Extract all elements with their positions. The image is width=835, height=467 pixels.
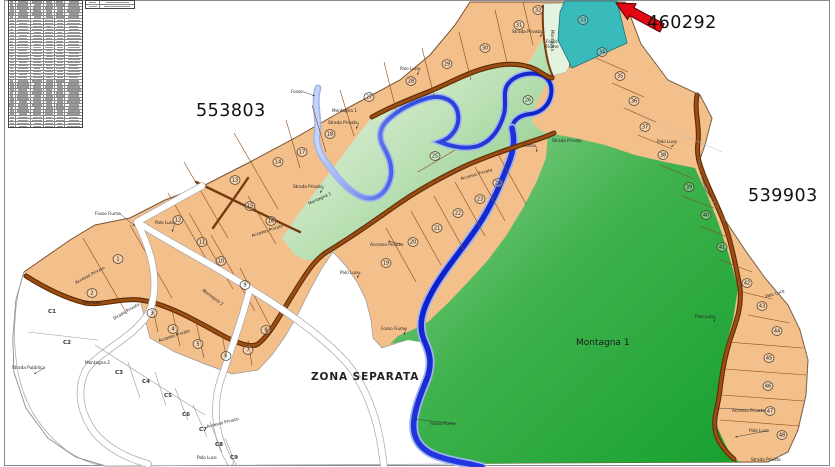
table-cell	[31, 107, 44, 109]
table-cell	[55, 98, 65, 100]
parcel-number: 7	[246, 348, 249, 354]
table-cell	[44, 19, 55, 21]
table-cell	[31, 46, 44, 48]
table-cell	[31, 62, 44, 64]
table-cell	[44, 71, 55, 73]
table-cell	[31, 65, 44, 67]
parcel-number: 38	[660, 153, 666, 159]
table-cell	[44, 4, 55, 6]
table-cell	[31, 4, 44, 6]
parcel-number: 20	[410, 240, 416, 246]
table-cell	[44, 59, 55, 61]
table-cell	[16, 101, 32, 103]
map-annotation: Strada Privata	[293, 184, 323, 189]
table-cell	[55, 89, 65, 91]
map-annotation: Fosso	[524, 143, 536, 148]
table-cell	[31, 86, 44, 88]
table-cell	[44, 83, 55, 85]
table-cell	[31, 19, 44, 21]
table-cell	[55, 113, 65, 115]
table-cell	[55, 119, 65, 121]
table-cell	[55, 13, 65, 15]
table-cell	[65, 98, 82, 100]
parcel-number: 5	[196, 342, 199, 348]
table-cell	[16, 65, 32, 67]
map-annotation: Accesso Privato	[370, 242, 403, 247]
table-cell	[31, 95, 44, 97]
table-cell	[55, 7, 65, 9]
table-cell	[16, 7, 32, 9]
table-cell	[55, 83, 65, 85]
parcel-number: 46	[765, 384, 771, 390]
parcel-number: 21	[434, 226, 440, 232]
table-cell	[16, 43, 32, 45]
table-cell	[31, 71, 44, 73]
table-cell	[31, 101, 44, 103]
table-cell	[55, 101, 65, 103]
map-annotation: Palo Luce	[155, 220, 175, 225]
map-annotation: Palo Luce	[695, 314, 715, 319]
table-cell	[55, 1, 65, 3]
parcel-number: 2	[90, 291, 93, 297]
table-cell	[44, 34, 55, 36]
table-cell	[55, 74, 65, 76]
parcel-number: 30	[482, 46, 488, 52]
table-cell	[31, 10, 44, 12]
table-cell	[44, 28, 55, 30]
table-cell	[55, 71, 65, 73]
table-cell	[44, 1, 55, 3]
c-parcel-label: C7	[199, 427, 207, 433]
table-cell	[55, 37, 65, 39]
table-cell	[86, 5, 100, 8]
table-cell	[55, 53, 65, 55]
table-cell	[31, 28, 44, 30]
table-cell	[65, 19, 82, 21]
parcel-number: 39	[686, 185, 692, 191]
table-cell	[16, 62, 32, 64]
table-cell	[31, 7, 44, 9]
c-parcel-label: C8	[215, 442, 223, 448]
table-cell	[55, 25, 65, 27]
table-cell	[65, 56, 82, 58]
parcel-number: 29	[444, 62, 450, 68]
table-cell	[31, 98, 44, 100]
map-annotation: Strada Pubblica	[12, 365, 45, 370]
table-cell	[55, 122, 65, 124]
table-cell	[65, 92, 82, 94]
c-parcel-label: C6	[182, 412, 190, 418]
table-cell	[16, 71, 32, 73]
table-cell	[44, 86, 55, 88]
map-annotation: Fosso Fiume	[381, 326, 407, 331]
table-cell	[65, 125, 82, 127]
parcel-number: 31	[516, 23, 522, 29]
table-cell	[31, 37, 44, 39]
table-cell	[44, 65, 55, 67]
table-cell	[44, 40, 55, 42]
table-cell	[65, 16, 82, 18]
parcel-number: 37	[642, 125, 648, 131]
parcel-number: 26	[525, 98, 531, 104]
table-cell	[65, 46, 82, 48]
map-annotation: Fosso Fiume	[95, 211, 121, 216]
table-cell	[31, 122, 44, 124]
table-cell	[55, 59, 65, 61]
table-cell	[16, 50, 32, 52]
parcel-number: 3	[150, 311, 153, 317]
table-cell	[65, 83, 82, 85]
parcel-number: 36	[631, 99, 637, 105]
table-cell	[31, 59, 44, 61]
table-cell	[55, 92, 65, 94]
table-cell	[31, 119, 44, 121]
table-cell	[55, 34, 65, 36]
table-cell	[44, 68, 55, 70]
zone-label-460292: 460292	[647, 13, 717, 33]
table-cell	[55, 125, 65, 127]
parcel-number: 22	[455, 211, 461, 217]
map-annotation: Strada Privata	[751, 457, 781, 462]
table-cell	[65, 101, 82, 103]
table-cell	[16, 119, 32, 121]
table-cell	[55, 4, 65, 6]
table-cell	[16, 46, 32, 48]
table-cell	[65, 119, 82, 121]
table-cell	[100, 1, 134, 4]
table-cell	[65, 40, 82, 42]
table-cell	[65, 80, 82, 82]
table-cell	[16, 68, 32, 70]
table-cell	[65, 50, 82, 52]
map-annotation: Strada Privata	[512, 29, 542, 34]
table-cell	[44, 10, 55, 12]
table-cell	[44, 16, 55, 18]
table-cell	[31, 125, 44, 127]
table-cell	[55, 95, 65, 97]
table-cell	[55, 77, 65, 79]
table-cell	[65, 4, 82, 6]
table-cell	[55, 56, 65, 58]
table-cell	[16, 59, 32, 61]
table-cell	[44, 77, 55, 79]
table-cell	[16, 92, 32, 94]
map-annotation: Palo Luce	[197, 455, 217, 460]
table-cell	[55, 46, 65, 48]
map-annotation: Palo Luce	[82, 300, 102, 305]
parcel-number: 34	[599, 50, 605, 56]
table-cell	[65, 1, 82, 3]
table-cell	[44, 101, 55, 103]
table-cell	[65, 77, 82, 79]
table-cell	[44, 89, 55, 91]
table-cell	[16, 95, 32, 97]
table-cell	[31, 80, 44, 82]
annotation-leader	[303, 92, 315, 96]
map-annotation: Strada Privata	[328, 120, 358, 125]
table-cell	[31, 25, 44, 27]
table-cell	[55, 104, 65, 106]
table-cell	[65, 31, 82, 33]
table-cell	[31, 22, 44, 24]
table-cell	[65, 22, 82, 24]
zona-separata-label: ZONA SEPARATA	[311, 371, 419, 383]
table-cell	[31, 68, 44, 70]
table-cell	[55, 40, 65, 42]
parcel-number: 44	[774, 329, 780, 335]
cadastral-plan-page: 553803 539903 460292 ZONA SEPARATA Monta…	[0, 0, 835, 467]
table-cell	[55, 116, 65, 118]
table-cell	[31, 16, 44, 18]
parcel-number: 43	[759, 304, 765, 310]
parcel-number: 19	[383, 261, 389, 267]
table-cell	[86, 1, 100, 4]
parcel-number: 23	[477, 197, 483, 203]
table-cell	[55, 16, 65, 18]
table-cell	[16, 110, 32, 112]
table-cell	[31, 13, 44, 15]
table-cell	[16, 74, 32, 76]
table-cell	[65, 86, 82, 88]
table-cell	[44, 53, 55, 55]
parcel-number: 25	[432, 154, 438, 160]
table-cell	[31, 34, 44, 36]
table-cell	[65, 71, 82, 73]
table-cell	[55, 110, 65, 112]
table-cell	[16, 37, 32, 39]
table-cell	[31, 92, 44, 94]
table-cell	[16, 10, 32, 12]
c-parcel-label: C2	[63, 340, 71, 346]
table-cell	[16, 83, 32, 85]
montagna1-label: Montagna 1	[576, 338, 630, 348]
map-annotation: Palo Luce	[749, 428, 769, 433]
table-cell	[65, 110, 82, 112]
table-cell	[16, 113, 32, 115]
table-cell	[16, 80, 32, 82]
table-cell	[65, 25, 82, 27]
table-cell	[31, 1, 44, 3]
parcel-number: 42	[744, 281, 750, 287]
table-row	[86, 5, 134, 8]
table-cell	[44, 80, 55, 82]
table-row	[9, 125, 82, 127]
zone-label-539903: 539903	[748, 186, 818, 206]
table-cell	[65, 59, 82, 61]
table-cell	[55, 19, 65, 21]
parcel-number: 10	[218, 259, 224, 265]
table-cell	[65, 68, 82, 70]
table-cell	[44, 25, 55, 27]
table-cell	[16, 98, 32, 100]
parcel-number: 45	[766, 356, 772, 362]
c-parcel-label: C1	[48, 309, 56, 315]
parcel-number: 47	[767, 409, 773, 415]
c-parcel-label: C4	[142, 379, 150, 385]
c-parcel-label: C9	[230, 455, 238, 461]
parcel-number: 32	[535, 8, 541, 14]
table-cell	[65, 89, 82, 91]
table-cell	[44, 116, 55, 118]
table-cell	[31, 77, 44, 79]
table-cell	[44, 95, 55, 97]
table-cell	[44, 7, 55, 9]
table-cell	[44, 122, 55, 124]
table-cell	[44, 125, 55, 127]
table-cell	[31, 43, 44, 45]
table-cell	[55, 10, 65, 12]
map-annotation: Fosso	[291, 89, 303, 94]
table-cell	[44, 74, 55, 76]
table-cell	[16, 86, 32, 88]
table-cell	[65, 113, 82, 115]
table-cell	[16, 40, 32, 42]
table-cell	[16, 28, 32, 30]
table-cell	[65, 13, 82, 15]
table-cell	[16, 122, 32, 124]
table-cell	[16, 13, 32, 15]
map-annotation: Palo Luce	[340, 270, 360, 275]
table-cell	[31, 56, 44, 58]
map-annotation: Montagna 1	[332, 108, 357, 113]
c-parcel-label: C3	[115, 370, 123, 376]
table-cell	[65, 116, 82, 118]
cadastral-map: 553803 539903 460292 ZONA SEPARATA Monta…	[0, 0, 835, 467]
table-cell	[31, 110, 44, 112]
table-cell	[55, 80, 65, 82]
parcel-data-table	[8, 0, 83, 128]
table-cell	[65, 107, 82, 109]
table-cell	[16, 4, 32, 6]
table-cell	[31, 116, 44, 118]
table-cell	[31, 53, 44, 55]
table-cell	[44, 31, 55, 33]
table-cell	[16, 107, 32, 109]
table-cell	[44, 22, 55, 24]
table-cell	[16, 89, 32, 91]
table-cell	[55, 107, 65, 109]
table-cell	[65, 122, 82, 124]
table-cell	[65, 104, 82, 106]
table-cell	[55, 22, 65, 24]
summary-table	[85, 0, 135, 9]
parcel-number: 33	[580, 18, 586, 24]
table-cell	[65, 62, 82, 64]
table-cell	[16, 31, 32, 33]
table-cell	[31, 113, 44, 115]
map-annotation: Strada Privata	[552, 138, 582, 143]
c-parcel-label: C5	[164, 393, 172, 399]
table-cell	[44, 43, 55, 45]
parcel-number: 13	[232, 178, 238, 184]
parcel-number: 15	[247, 204, 253, 210]
table-cell	[55, 86, 65, 88]
parcel-number: 41	[719, 245, 725, 251]
table-cell	[44, 62, 55, 64]
table-cell	[55, 68, 65, 70]
table-cell	[16, 19, 32, 21]
table-cell	[100, 5, 134, 8]
table-cell	[44, 56, 55, 58]
table-cell	[16, 25, 32, 27]
parcel-number: 4	[171, 327, 174, 333]
table-cell	[16, 16, 32, 18]
table-cell	[44, 46, 55, 48]
table-cell	[65, 7, 82, 9]
table-cell	[16, 104, 32, 106]
table-cell	[16, 34, 32, 36]
map-annotation: Palo Luce	[400, 66, 420, 71]
parcel-number: 28	[408, 79, 414, 85]
table-cell	[16, 53, 32, 55]
table-cell	[55, 28, 65, 30]
table-cell	[44, 104, 55, 106]
table-cell	[16, 125, 32, 127]
parcel-number: 18	[327, 132, 333, 138]
table-cell	[65, 53, 82, 55]
table-cell	[44, 98, 55, 100]
table-cell	[44, 119, 55, 121]
table-cell	[16, 56, 32, 58]
table-cell	[31, 31, 44, 33]
parcel-number: 6	[224, 354, 227, 360]
parcel-number: 48	[779, 433, 785, 439]
zone-label-553803: 553803	[196, 101, 266, 121]
table-cell	[65, 43, 82, 45]
table-cell	[16, 1, 32, 3]
table-cell	[44, 37, 55, 39]
table-cell	[44, 110, 55, 112]
table-cell	[65, 34, 82, 36]
table-cell	[55, 31, 65, 33]
parcel-number: 9	[243, 283, 246, 289]
parcel-number: 11	[199, 240, 205, 246]
parcel-number: 24	[495, 181, 501, 187]
map-annotation: Fiume	[546, 44, 559, 49]
table-cell	[65, 28, 82, 30]
table-cell	[65, 65, 82, 67]
table-cell	[31, 40, 44, 42]
table-cell	[44, 107, 55, 109]
table-cell	[55, 62, 65, 64]
parcel-number: 14	[275, 160, 281, 166]
table-cell	[44, 92, 55, 94]
table-cell	[31, 74, 44, 76]
table-cell	[16, 116, 32, 118]
parcel-number: 27	[366, 95, 372, 101]
parcel-number: 40	[703, 213, 709, 219]
table-cell	[55, 50, 65, 52]
parcel-number: 12	[175, 218, 181, 224]
table-cell	[44, 50, 55, 52]
table-cell	[31, 83, 44, 85]
table-cell	[65, 74, 82, 76]
table-cell	[31, 104, 44, 106]
table-cell	[44, 113, 55, 115]
parcel-number: 8	[264, 328, 267, 334]
parcel-number: 16	[268, 219, 274, 225]
parcel-number: 17	[299, 150, 305, 156]
table-cell	[31, 50, 44, 52]
map-annotation: Palo Luce	[657, 139, 677, 144]
table-cell	[31, 89, 44, 91]
parcel-number: 35	[617, 74, 623, 80]
table-cell	[55, 43, 65, 45]
table-cell	[65, 10, 82, 12]
table-cell	[65, 95, 82, 97]
parcel-number: 1	[116, 257, 119, 263]
map-annotation: Montagna 2	[85, 360, 110, 365]
